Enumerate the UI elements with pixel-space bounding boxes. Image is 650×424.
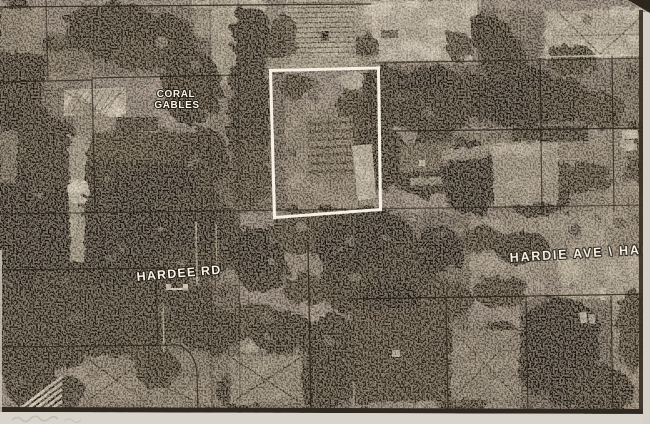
svg-text:CORAL: CORAL <box>157 89 196 100</box>
svg-text:GABLES: GABLES <box>154 100 199 111</box>
